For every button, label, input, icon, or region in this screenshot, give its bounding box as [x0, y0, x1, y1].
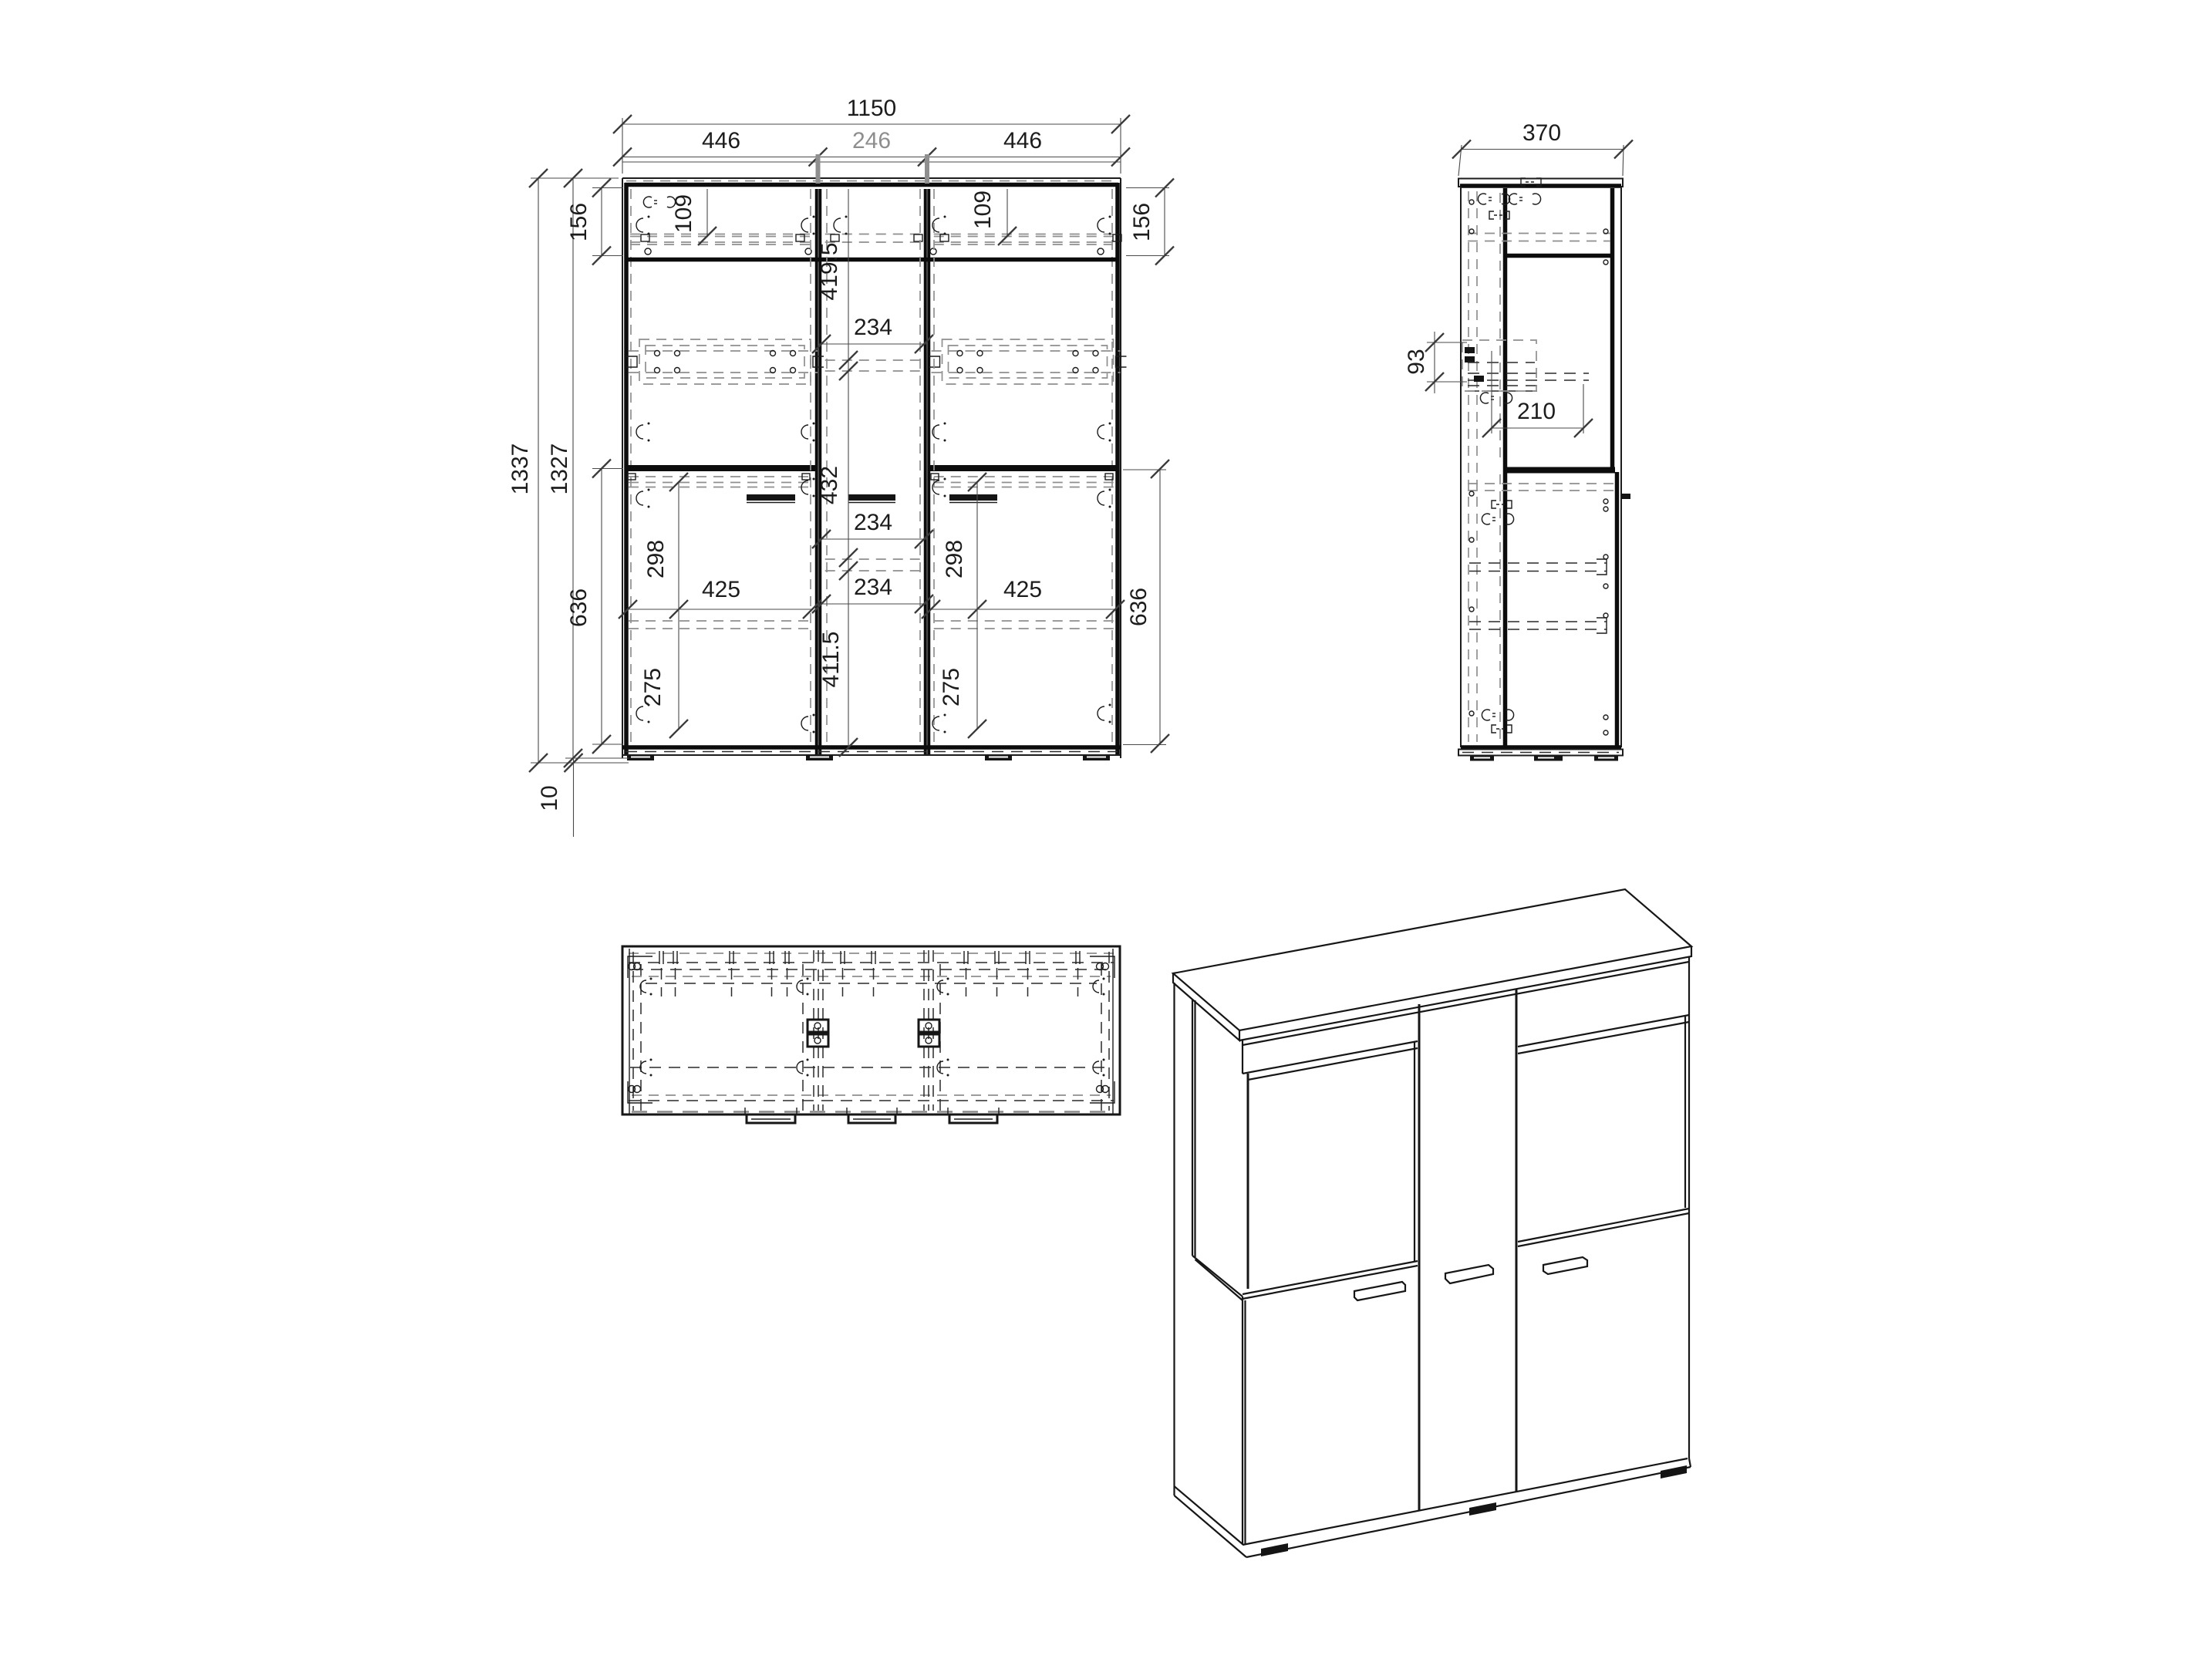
svg-text:1150: 1150 — [847, 96, 897, 121]
svg-text:298: 298 — [643, 540, 669, 578]
svg-text:446: 446 — [1003, 128, 1042, 153]
svg-text:425: 425 — [1003, 577, 1042, 602]
svg-text:411.5: 411.5 — [818, 632, 844, 688]
svg-text:432: 432 — [817, 466, 842, 504]
svg-text:1327: 1327 — [547, 443, 572, 495]
svg-text:298: 298 — [942, 540, 967, 578]
svg-text:275: 275 — [640, 668, 666, 706]
svg-text:234: 234 — [854, 575, 892, 600]
svg-text:370: 370 — [1522, 120, 1561, 146]
svg-text:210: 210 — [1517, 399, 1556, 424]
svg-text:234: 234 — [854, 315, 892, 340]
svg-text:109: 109 — [970, 191, 996, 229]
svg-text:425: 425 — [702, 577, 740, 602]
svg-text:109: 109 — [671, 194, 696, 233]
svg-text:234: 234 — [854, 510, 892, 535]
svg-text:275: 275 — [939, 668, 964, 706]
svg-text:636: 636 — [566, 588, 592, 627]
svg-text:446: 446 — [702, 128, 740, 153]
svg-text:1337: 1337 — [507, 443, 533, 495]
svg-text:10: 10 — [537, 785, 562, 811]
svg-text:156: 156 — [1129, 203, 1155, 241]
svg-text:246: 246 — [852, 128, 891, 153]
svg-text:93: 93 — [1404, 349, 1429, 374]
svg-text:636: 636 — [1126, 588, 1152, 626]
svg-text:419.5: 419.5 — [817, 242, 842, 300]
svg-text:156: 156 — [566, 203, 592, 241]
